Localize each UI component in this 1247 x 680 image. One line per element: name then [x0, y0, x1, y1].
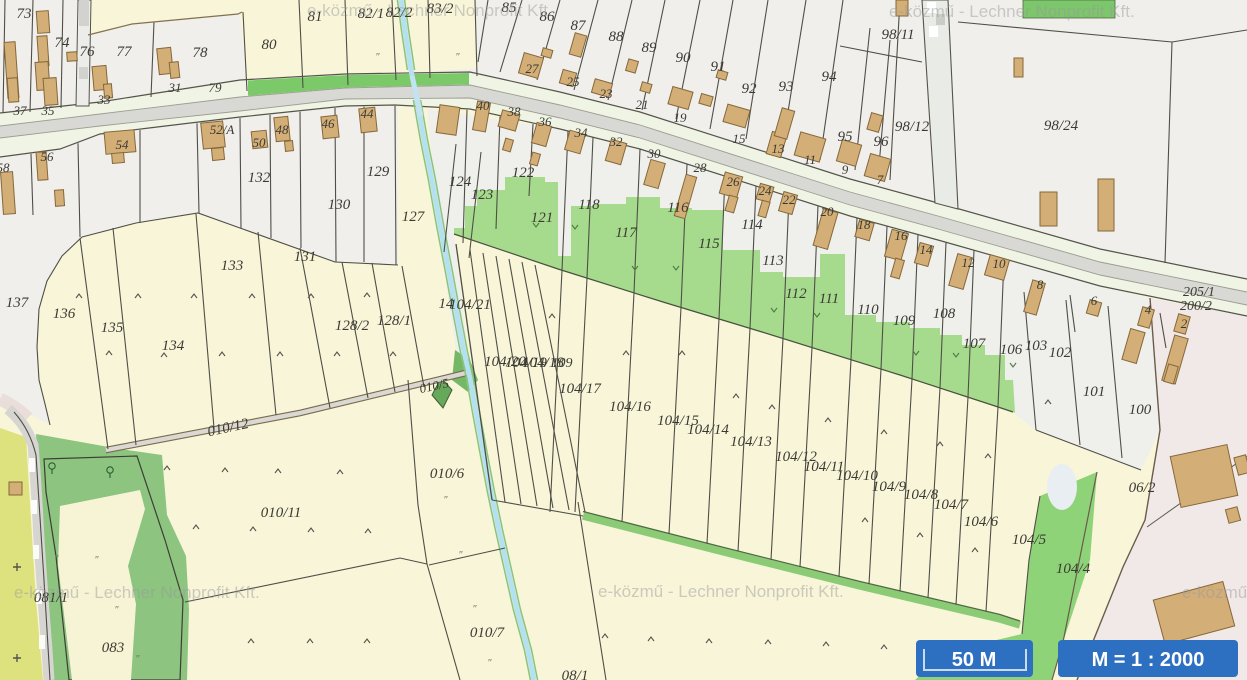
svg-text:22: 22 [783, 192, 797, 207]
svg-text:34: 34 [574, 125, 589, 140]
svg-text:4: 4 [1145, 302, 1152, 317]
svg-text:27: 27 [526, 61, 540, 76]
svg-text:104/14: 104/14 [687, 422, 729, 438]
svg-text:109: 109 [893, 313, 916, 329]
svg-text:104/13: 104/13 [730, 434, 772, 450]
svg-text:35: 35 [41, 103, 56, 118]
svg-text:80: 80 [262, 37, 278, 53]
svg-text:104/9: 104/9 [872, 479, 907, 495]
svg-text:14: 14 [439, 296, 455, 312]
svg-text:48: 48 [276, 122, 290, 137]
svg-text:134: 134 [162, 338, 185, 354]
svg-text:31: 31 [168, 80, 182, 95]
svg-text:89: 89 [642, 40, 658, 56]
svg-text:112: 112 [785, 286, 807, 302]
svg-text:127: 127 [402, 209, 426, 225]
svg-text:108: 108 [933, 306, 956, 322]
svg-text:73: 73 [17, 6, 32, 22]
svg-text:111: 111 [819, 291, 839, 307]
svg-text:200/2: 200/2 [1180, 299, 1212, 314]
svg-text:132: 132 [248, 170, 271, 186]
svg-text:88: 88 [609, 29, 625, 45]
svg-text:131: 131 [294, 249, 317, 265]
svg-text:″: ″ [488, 658, 492, 669]
svg-text:136: 136 [53, 306, 76, 322]
svg-text:″: ″ [376, 52, 380, 63]
svg-text:137: 137 [6, 295, 30, 311]
svg-text:76: 76 [80, 44, 96, 60]
svg-text:93: 93 [779, 79, 794, 95]
svg-text:104/7: 104/7 [934, 497, 970, 513]
svg-text:e-közmű - Lechner Nonprofit Kf: e-közmű - Lechner Nonprofit Kft. [1182, 583, 1247, 602]
svg-text:104/17: 104/17 [559, 381, 602, 397]
svg-text:52/A: 52/A [210, 122, 235, 137]
svg-text:083: 083 [102, 640, 125, 656]
svg-text:118: 118 [578, 197, 600, 213]
svg-text:25: 25 [567, 74, 581, 89]
svg-text:8: 8 [1037, 277, 1044, 292]
svg-text:121: 121 [531, 210, 554, 226]
svg-text:″: ″ [115, 605, 119, 616]
svg-text:115: 115 [698, 236, 720, 252]
svg-text:010/6: 010/6 [430, 466, 465, 482]
svg-text:95: 95 [838, 129, 854, 145]
svg-text:98/11: 98/11 [881, 27, 914, 43]
svg-text:9: 9 [842, 162, 849, 177]
svg-text:7: 7 [877, 172, 884, 187]
svg-text:30: 30 [647, 146, 662, 161]
svg-text:2: 2 [1181, 316, 1188, 331]
svg-text:14: 14 [920, 242, 934, 257]
svg-text:40: 40 [477, 98, 491, 113]
svg-text:e-közmű - Lechner Nonprofit Kf: e-közmű - Lechner Nonprofit Kft. [889, 2, 1135, 21]
svg-text:″: ″ [456, 52, 460, 63]
svg-text:133: 133 [221, 258, 244, 274]
svg-text:36: 36 [538, 114, 553, 129]
svg-text:128/1: 128/1 [377, 313, 411, 329]
svg-text:″: ″ [473, 604, 477, 615]
svg-text:104/6: 104/6 [964, 514, 999, 530]
svg-text:13: 13 [772, 141, 786, 156]
svg-text:58: 58 [0, 160, 10, 175]
svg-text:98/12: 98/12 [895, 119, 930, 135]
svg-text:77: 77 [117, 44, 134, 60]
svg-text:26: 26 [727, 174, 741, 189]
svg-text:46: 46 [322, 116, 336, 131]
svg-text:116: 116 [667, 200, 689, 216]
svg-text:74: 74 [55, 35, 71, 51]
svg-text:90: 90 [676, 50, 692, 66]
svg-text:109: 109 [552, 356, 573, 371]
svg-text:100: 100 [1129, 402, 1152, 418]
svg-text:″: ″ [55, 554, 59, 565]
svg-text:54: 54 [116, 137, 130, 152]
svg-text:16: 16 [895, 228, 909, 243]
svg-text:96: 96 [874, 134, 890, 150]
svg-text:98/24: 98/24 [1044, 118, 1079, 134]
svg-text:010/11: 010/11 [261, 505, 302, 521]
svg-text:102: 102 [1049, 345, 1072, 361]
svg-text:10: 10 [993, 256, 1007, 271]
svg-text:″: ″ [444, 495, 448, 506]
svg-text:08/1: 08/1 [562, 668, 589, 680]
svg-text:38: 38 [507, 104, 522, 119]
svg-text:91: 91 [711, 59, 726, 75]
svg-text:18: 18 [858, 217, 872, 232]
svg-text:104/5: 104/5 [1012, 532, 1047, 548]
svg-text:12: 12 [962, 255, 976, 270]
svg-text:114: 114 [741, 217, 763, 233]
svg-text:107: 107 [963, 336, 987, 352]
svg-text:20: 20 [821, 204, 835, 219]
svg-text:50: 50 [253, 135, 267, 150]
svg-text:15: 15 [733, 131, 747, 146]
svg-text:21: 21 [636, 97, 649, 112]
svg-text:104/21: 104/21 [449, 297, 491, 313]
svg-text:78: 78 [193, 45, 209, 61]
svg-text:128/2: 128/2 [335, 318, 370, 334]
svg-text:e-közmű - Lechner Nonprofit Kf: e-közmű - Lechner Nonprofit Kft. [14, 583, 260, 602]
svg-text:79: 79 [209, 80, 223, 95]
svg-text:19: 19 [674, 110, 688, 125]
svg-text:135: 135 [101, 320, 124, 336]
svg-text:117: 117 [615, 225, 638, 241]
svg-text:e-közmű - Lechner Nonprofit Kf: e-közmű - Lechner Nonprofit Kft. [307, 1, 553, 20]
svg-text:44: 44 [361, 106, 375, 121]
svg-text:205/1: 205/1 [1183, 285, 1215, 300]
svg-text:122: 122 [512, 165, 535, 181]
svg-text:010/7: 010/7 [470, 625, 506, 641]
svg-text:24: 24 [759, 183, 773, 198]
svg-text:50 M: 50 M [952, 649, 996, 671]
svg-text:106: 106 [1000, 342, 1023, 358]
svg-text:6: 6 [1091, 293, 1098, 308]
svg-text:104/4: 104/4 [1056, 561, 1091, 577]
svg-text:113: 113 [762, 253, 783, 269]
svg-text:32: 32 [609, 134, 624, 149]
svg-text:28: 28 [694, 160, 708, 175]
svg-text:06/2: 06/2 [1129, 480, 1156, 496]
svg-text:94: 94 [822, 69, 838, 85]
svg-text:″: ″ [136, 654, 140, 665]
svg-text:124: 124 [449, 174, 472, 190]
svg-text:129: 129 [367, 164, 390, 180]
svg-text:M = 1 : 2000: M = 1 : 2000 [1092, 649, 1205, 671]
svg-text:92: 92 [742, 81, 758, 97]
svg-text:103: 103 [1025, 338, 1048, 354]
svg-text:123: 123 [471, 187, 494, 203]
svg-text:101: 101 [1083, 384, 1106, 400]
svg-text:104/16: 104/16 [609, 399, 651, 415]
svg-text:11: 11 [804, 152, 816, 167]
svg-text:87: 87 [571, 18, 588, 34]
svg-text:130: 130 [328, 197, 351, 213]
svg-text:e-közmű - Lechner Nonprofit Kf: e-közmű - Lechner Nonprofit Kft. [598, 582, 844, 601]
svg-text:33: 33 [97, 92, 112, 107]
svg-text:23: 23 [600, 86, 614, 101]
svg-text:″: ″ [95, 555, 99, 566]
svg-text:″: ″ [459, 550, 463, 561]
svg-text:110: 110 [857, 302, 879, 318]
svg-text:56: 56 [41, 149, 55, 164]
svg-text:37: 37 [13, 103, 28, 118]
